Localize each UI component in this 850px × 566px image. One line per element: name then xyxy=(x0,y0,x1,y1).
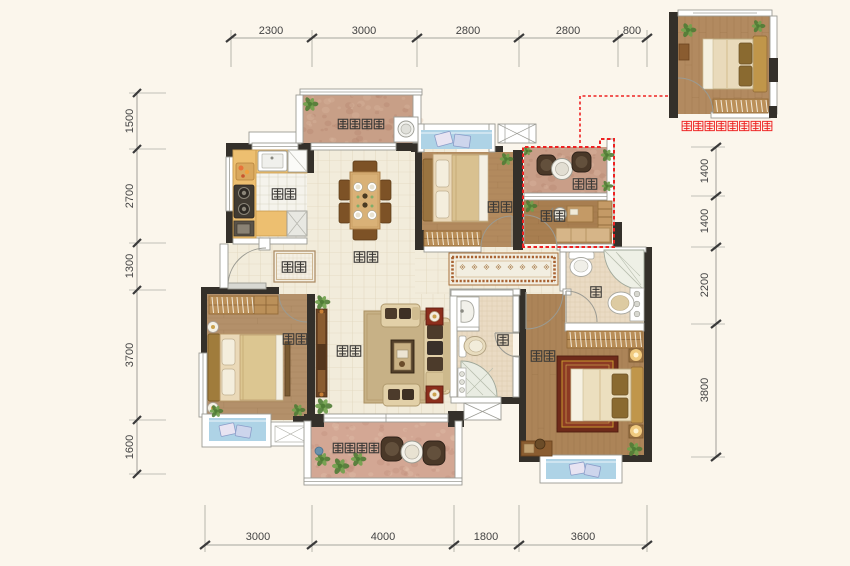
svg-text:3600: 3600 xyxy=(571,531,595,543)
svg-text:3800: 3800 xyxy=(699,378,711,402)
svg-text:2700: 2700 xyxy=(124,184,136,208)
svg-text:2800: 2800 xyxy=(456,25,480,37)
svg-text:2300: 2300 xyxy=(259,25,283,37)
svg-text:1500: 1500 xyxy=(124,109,136,133)
svg-text:800: 800 xyxy=(623,25,641,37)
svg-text:3700: 3700 xyxy=(124,343,136,367)
svg-text:4000: 4000 xyxy=(371,531,395,543)
svg-text:1400: 1400 xyxy=(699,159,711,183)
svg-text:1400: 1400 xyxy=(699,209,711,233)
svg-text:2200: 2200 xyxy=(699,273,711,297)
svg-text:3000: 3000 xyxy=(352,25,376,37)
svg-text:1300: 1300 xyxy=(124,254,136,278)
svg-text:3000: 3000 xyxy=(246,531,270,543)
svg-text:1600: 1600 xyxy=(124,435,136,459)
svg-text:2800: 2800 xyxy=(556,25,580,37)
svg-text:1800: 1800 xyxy=(474,531,498,543)
